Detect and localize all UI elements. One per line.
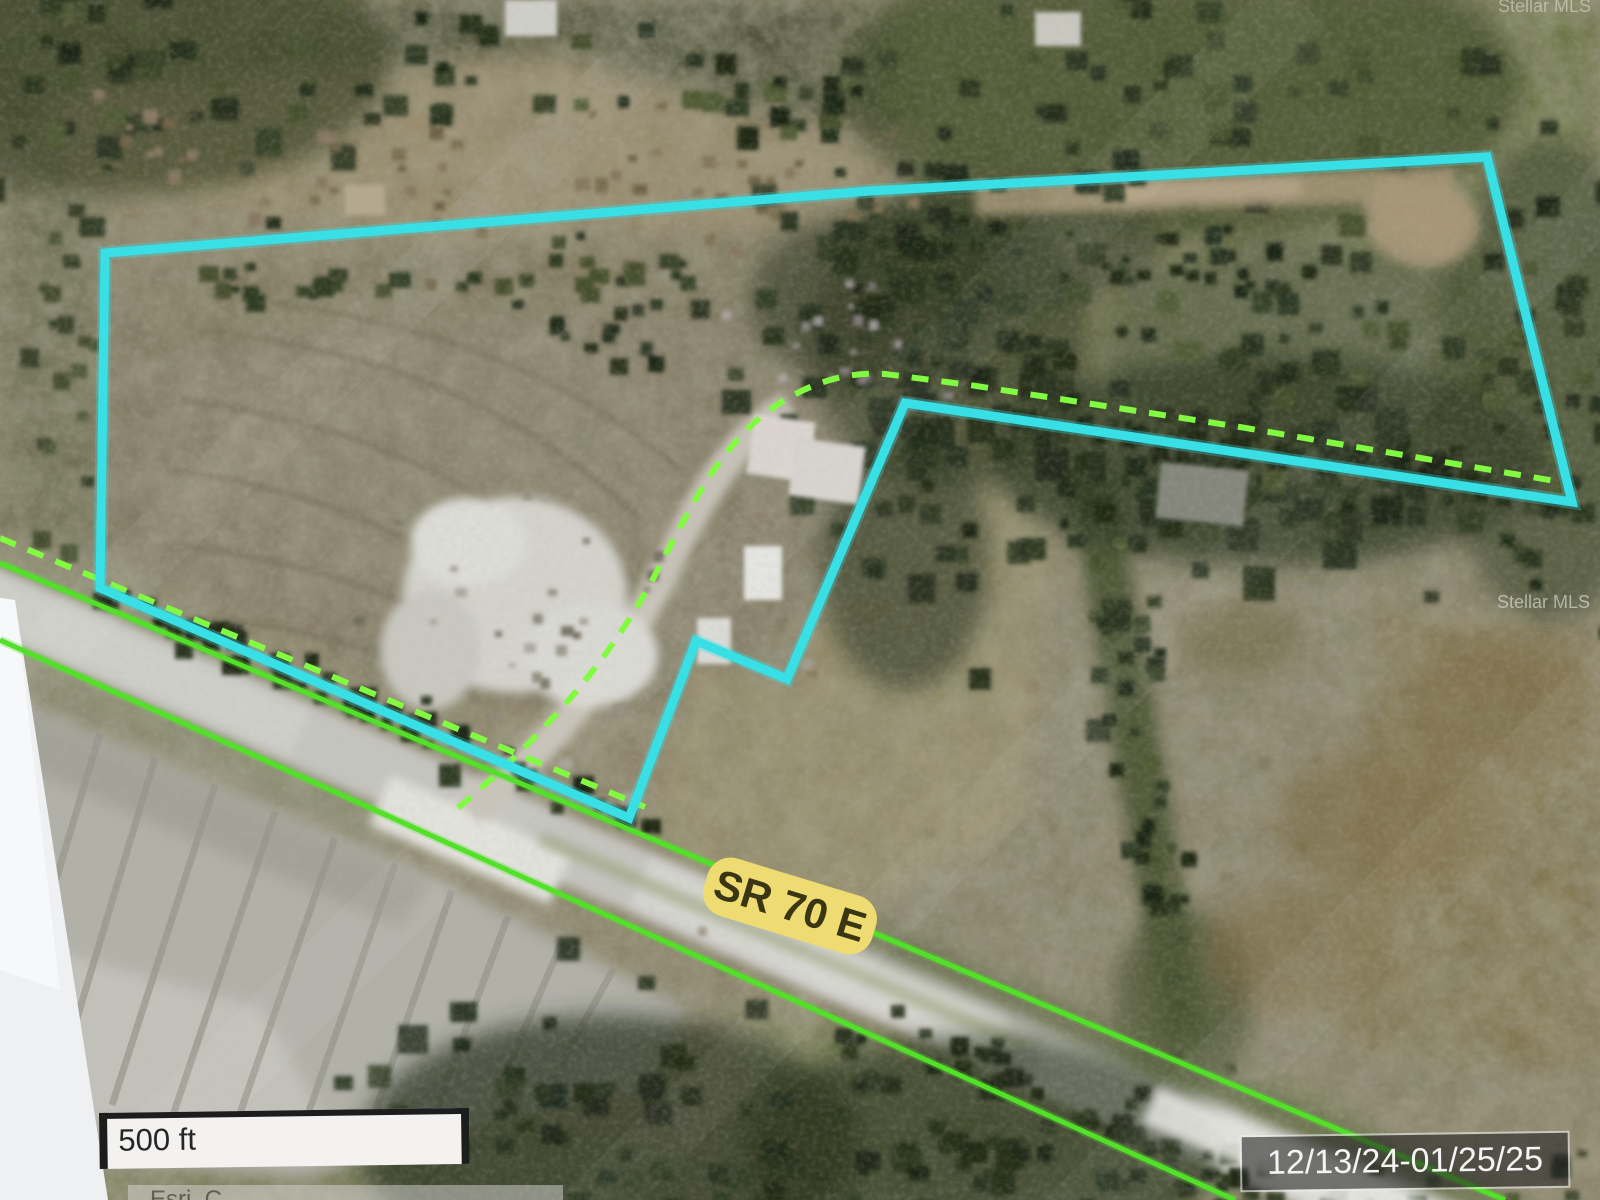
svg-text:Stellar MLS: Stellar MLS — [1497, 592, 1590, 612]
svg-text:Esri, C: Esri, C — [150, 1186, 222, 1200]
svg-text:500 ft: 500 ft — [118, 1122, 196, 1158]
svg-text:12/13/24-01/25/25: 12/13/24-01/25/25 — [1267, 1140, 1544, 1182]
svg-text:Stellar MLS: Stellar MLS — [1498, 0, 1591, 16]
